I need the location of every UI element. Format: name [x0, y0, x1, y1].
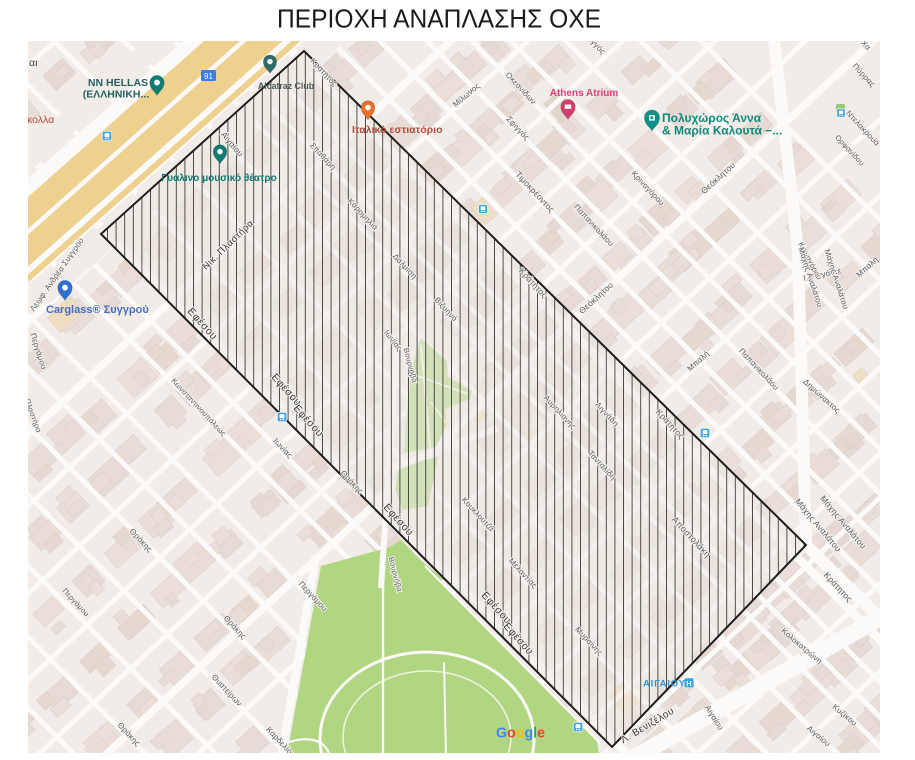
svg-text:NN HELLAS: NN HELLAS: [88, 77, 148, 89]
svg-text:& Μαρία Καλουτά −...: & Μαρία Καλουτά −...: [662, 124, 782, 138]
svg-text:ΠΕΡΙΟΧΗ ΑΝΑΠΛΑΣΗΣ ΟΧΕ: ΠΕΡΙΟΧΗ ΑΝΑΠΛΑΣΗΣ ΟΧΕ: [277, 4, 601, 34]
svg-text:(ΕΛΛΗΝΙΚΗ...: (ΕΛΛΗΝΙΚΗ...: [83, 89, 150, 101]
svg-text:Athens Atrium: Athens Atrium: [550, 88, 619, 99]
svg-text:ΑΙΓΑΙΟΥ: ΑΙΓΑΙΟΥ: [643, 679, 686, 690]
svg-text:αι: αι: [29, 57, 38, 69]
svg-text:Η: Η: [686, 679, 691, 688]
svg-text:Ιταλικό εστιατόριο: Ιταλικό εστιατόριο: [352, 124, 443, 136]
svg-text:Google: Google: [496, 726, 545, 742]
svg-text:Alcatraz Club: Alcatraz Club: [258, 81, 315, 91]
svg-text:Γυάλινο μουσικό θέατρο: Γυάλινο μουσικό θέατρο: [161, 173, 276, 184]
svg-text:Carglass® Συγγρού: Carglass® Συγγρού: [46, 304, 149, 316]
svg-text:κολλα: κολλα: [27, 114, 54, 126]
svg-text:91: 91: [204, 72, 213, 81]
